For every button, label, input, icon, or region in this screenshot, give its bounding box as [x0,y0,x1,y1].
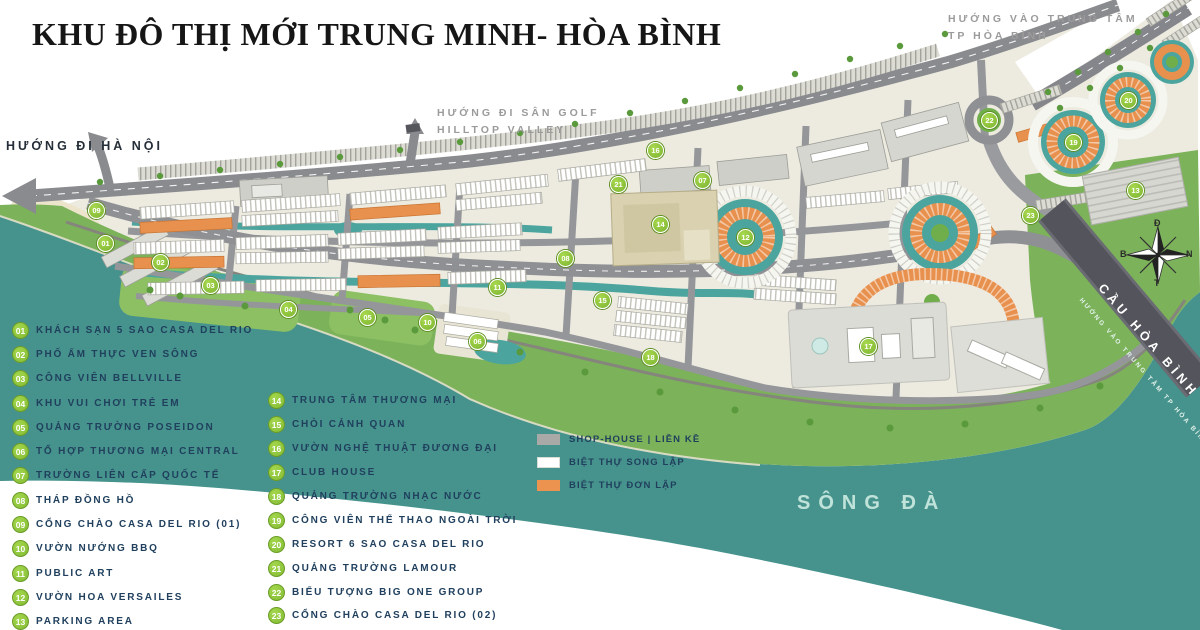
type-key-row: BIỆT THỰ ĐƠN LẬP [537,474,700,497]
legend-column-1: 01KHÁCH SẠN 5 SAO CASA DEL RIO 02PHỐ ẨM … [12,318,253,630]
direction-label-city-centre: HƯỚNG VÀO TRUNG TÂM TP HÒA BÌNH [948,11,1138,45]
masterplan-poster: KHU ĐÔ THỊ MỚI TRUNG MINH- HÒA BÌNH HƯỚN… [0,0,1200,630]
legend-item: 01KHÁCH SẠN 5 SAO CASA DEL RIO [12,318,253,342]
map-marker: 03 [202,277,219,294]
legend-item: 14TRUNG TÂM THƯƠNG MẠI [268,389,517,413]
legend-item: 23CỔNG CHÀO CASA DEL RIO (02) [268,604,517,628]
legend-badge: 11 [12,565,29,582]
road-arrow-golf-icon [406,118,424,164]
map-marker: 19 [1065,134,1082,151]
map-marker: 09 [88,202,105,219]
semi-detached-swatch [537,457,560,468]
type-key-row: BIỆT THỰ SONG LẬP [537,451,700,474]
type-key-row: SHOP-HOUSE | LIỀN KỀ [537,428,700,451]
compass-letter-left: B [1120,249,1127,259]
detached-swatch [537,480,560,491]
legend-badge: 07 [12,467,29,484]
direction-label-golf-line2: HILLTOP VALLEY [437,122,600,139]
map-marker: 15 [594,292,611,309]
map-marker: 07 [694,172,711,189]
map-marker: 08 [557,250,574,267]
legend-badge: 09 [12,516,29,533]
legend-badge: 19 [268,512,285,529]
map-marker: 13 [1127,182,1144,199]
legend-badge: 20 [268,536,285,553]
map-marker: 06 [469,333,486,350]
map-marker: 04 [280,301,297,318]
legend-item: 11PUBLIC ART [12,561,253,585]
legend-item: 18QUẢNG TRƯỜNG NHẠC NƯỚC [268,485,517,509]
legend-item: 17CLUB HOUSE [268,461,517,485]
legend-badge: 10 [12,540,29,557]
map-marker: 12 [737,229,754,246]
legend-item: 12VƯỜN HOA VERSAILES [12,585,253,609]
legend-badge: 23 [268,607,285,624]
legend-item: 22BIỂU TƯỢNG BIG ONE GROUP [268,580,517,604]
map-marker: 16 [647,142,664,159]
legend-badge: 05 [12,419,29,436]
map-marker: 21 [610,176,627,193]
legend-item: 03CÔNG VIÊN BELLVILLE [12,367,253,391]
legend-item: 07TRƯỜNG LIÊN CẤP QUỐC TẾ [12,464,253,488]
map-marker: 22 [981,112,998,129]
legend-item: 16VƯỜN NGHỆ THUẬT ĐƯƠNG ĐẠI [268,437,517,461]
legend-item: 04KHU VUI CHƠI TRẺ EM [12,391,253,415]
legend-badge: 12 [12,589,29,606]
legend-item: 13PARKING AREA [12,610,253,630]
legend-badge: 01 [12,322,29,339]
legend-item: 19CÔNG VIÊN THỂ THAO NGOÀI TRỜI [268,508,517,532]
legend-badge: 06 [12,443,29,460]
legend-badge: 21 [268,560,285,577]
legend-item: 06TỔ HỢP THƯƠNG MẠI CENTRAL [12,439,253,463]
legend-item: 05QUẢNG TRƯỜNG POSEIDON [12,415,253,439]
legend-item: 21QUẢNG TRƯỜNG LAMOUR [268,556,517,580]
legend-badge: 18 [268,488,285,505]
legend-badge: 02 [12,346,29,363]
page-title: KHU ĐÔ THỊ MỚI TRUNG MINH- HÒA BÌNH [32,16,721,53]
legend-badge: 17 [268,464,285,481]
direction-label-golf-line1: HƯỚNG ĐI SÂN GOLF [437,105,600,122]
legend-badge: 15 [268,416,285,433]
legend-badge: 14 [268,392,285,409]
direction-label-city-line1: HƯỚNG VÀO TRUNG TÂM [948,11,1138,28]
map-marker: 10 [419,314,436,331]
legend-item: 20RESORT 6 SAO CASA DEL RIO [268,532,517,556]
legend-column-2: 14TRUNG TÂM THƯƠNG MẠI 15CHÒI CẢNH QUAN … [268,389,517,628]
legend-badge: 22 [268,584,285,601]
shophouse-swatch [537,434,560,445]
legend-item: 10VƯỜN NƯỚNG BBQ [12,537,253,561]
direction-label-golf: HƯỚNG ĐI SÂN GOLF HILLTOP VALLEY [437,105,600,139]
map-marker: 01 [97,235,114,252]
direction-label-hanoi: HƯỚNG ĐI HÀ NỘI [6,139,163,153]
map-marker: 23 [1022,207,1039,224]
housing-type-key: SHOP-HOUSE | LIỀN KỀ BIỆT THỰ SONG LẬP B… [537,428,700,497]
map-marker: 18 [642,349,659,366]
legend-badge: 16 [268,440,285,457]
map-marker: 05 [359,309,376,326]
compass-letter-right: N [1186,249,1193,259]
river-label: SÔNG ĐÀ [797,492,946,515]
map-marker: 17 [860,338,877,355]
legend-badge: 08 [12,492,29,509]
direction-label-city-line2: TP HÒA BÌNH [948,28,1138,45]
legend-badge: 04 [12,395,29,412]
legend-item: 09CỔNG CHÀO CASA DEL RIO (01) [12,512,253,536]
map-marker: 11 [489,279,506,296]
legend-badge: 03 [12,370,29,387]
compass-letter-bottom: T [1154,278,1160,288]
legend-item: 08THÁP ĐỒNG HỒ [12,488,253,512]
map-marker: 20 [1120,92,1137,109]
map-marker: 02 [152,254,169,271]
legend-item: 15CHÒI CẢNH QUAN [268,413,517,437]
legend-badge: 13 [12,613,29,630]
map-marker: 14 [652,216,669,233]
compass-letter-top: Đ [1154,218,1161,228]
legend-item: 02PHỐ ẨM THỰC VEN SÔNG [12,342,253,366]
